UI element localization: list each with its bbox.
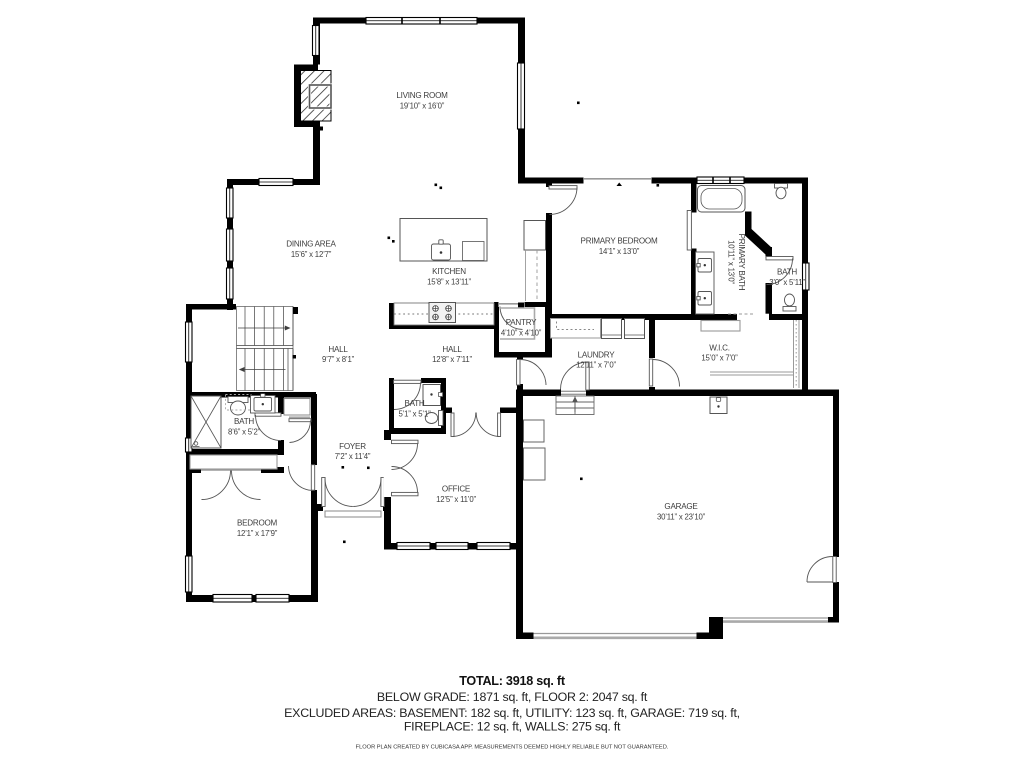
- svg-text:3’0” x 5’11”: 3’0” x 5’11”: [769, 278, 805, 287]
- svg-text:12’5” x 11’0”: 12’5” x 11’0”: [436, 495, 476, 504]
- svg-text:BATH: BATH: [405, 399, 425, 408]
- svg-text:W.I.C.: W.I.C.: [709, 343, 730, 352]
- svg-text:BELOW GRADE: 1871 sq. ft, FLOO: BELOW GRADE: 1871 sq. ft, FLOOR 2: 2047 …: [377, 690, 648, 704]
- svg-text:9’7” x 8’1”: 9’7” x 8’1”: [322, 355, 355, 364]
- svg-text:14’1” x 13’0”: 14’1” x 13’0”: [599, 247, 640, 256]
- svg-text:PRIMARY BEDROOM: PRIMARY BEDROOM: [581, 237, 658, 246]
- svg-text:4’10” x 4’10”: 4’10” x 4’10”: [501, 328, 542, 337]
- svg-text:HALL: HALL: [328, 345, 348, 354]
- svg-text:PRIMARY BATH: PRIMARY BATH: [737, 234, 746, 291]
- svg-text:TOTAL: 3918 sq. ft: TOTAL: 3918 sq. ft: [459, 674, 566, 688]
- svg-text:BEDROOM: BEDROOM: [237, 519, 278, 528]
- svg-text:BATH: BATH: [777, 268, 797, 277]
- svg-text:15’0” x 7’0”: 15’0” x 7’0”: [701, 354, 738, 363]
- svg-text:DINING AREA: DINING AREA: [286, 240, 336, 249]
- svg-text:BATH: BATH: [234, 417, 254, 426]
- svg-text:19’10” x 16’0”: 19’10” x 16’0”: [400, 101, 445, 110]
- svg-text:LIVING ROOM: LIVING ROOM: [396, 91, 448, 100]
- svg-text:OFFICE: OFFICE: [442, 485, 471, 494]
- svg-text:12’1” x 17’9”: 12’1” x 17’9”: [237, 529, 278, 538]
- svg-text:FLOOR PLAN CREATED BY CUBICASA: FLOOR PLAN CREATED BY CUBICASA APP. MEAS…: [356, 745, 669, 751]
- svg-text:12’8” x 7’11”: 12’8” x 7’11”: [432, 355, 472, 364]
- svg-text:GARAGE: GARAGE: [664, 502, 698, 511]
- svg-text:LAUNDRY: LAUNDRY: [578, 350, 616, 359]
- svg-text:FOYER: FOYER: [339, 442, 366, 451]
- svg-text:15’8” x 13’11”: 15’8” x 13’11”: [427, 277, 471, 286]
- svg-text:EXCLUDED AREAS: BASEMENT: 182: EXCLUDED AREAS: BASEMENT: 182 sq. ft, UT…: [284, 706, 740, 720]
- svg-text:FIREPLACE: 12 sq. ft, WALLS: 2: FIREPLACE: 12 sq. ft, WALLS: 275 sq. ft: [404, 720, 621, 734]
- svg-text:5’1” x 5’1”: 5’1” x 5’1”: [398, 410, 431, 419]
- svg-text:15’6” x 12’7”: 15’6” x 12’7”: [291, 250, 332, 259]
- svg-text:12’11” x 7’0”: 12’11” x 7’0”: [576, 361, 616, 370]
- svg-text:7’2” x 11’4”: 7’2” x 11’4”: [335, 452, 371, 461]
- svg-text:KITCHEN: KITCHEN: [432, 267, 466, 276]
- svg-text:10’11” x 13’0”: 10’11” x 13’0”: [727, 240, 736, 284]
- svg-text:8’6” x 5’2”: 8’6” x 5’2”: [228, 427, 261, 436]
- svg-text:30’11” x 23’10”: 30’11” x 23’10”: [657, 512, 706, 521]
- svg-text:PANTRY: PANTRY: [506, 318, 537, 327]
- svg-text:HALL: HALL: [442, 345, 462, 354]
